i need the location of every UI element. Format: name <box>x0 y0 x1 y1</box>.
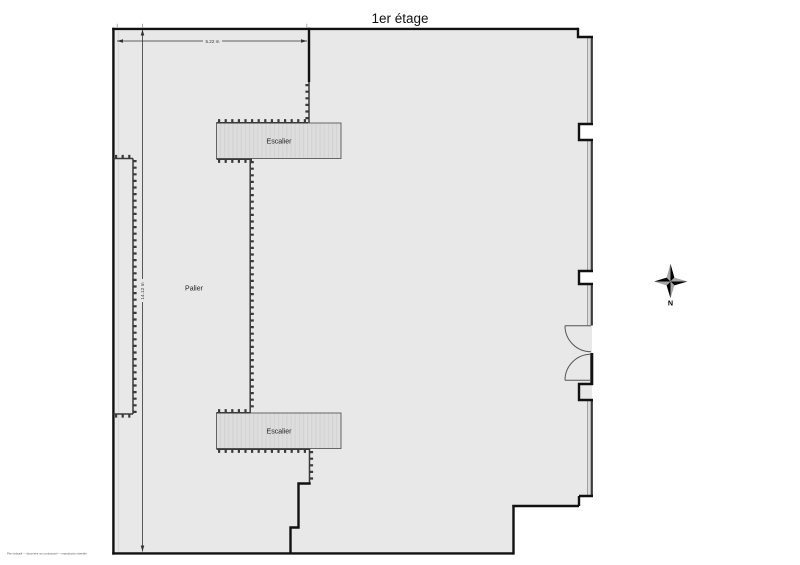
svg-text:Palier: Palier <box>185 286 204 293</box>
svg-text:1er étage: 1er étage <box>371 11 428 26</box>
svg-text:N: N <box>668 299 673 308</box>
svg-text:14.12 m: 14.12 m <box>140 282 146 299</box>
svg-text:5.22 m: 5.22 m <box>205 39 219 44</box>
svg-text:Plan indicatif — document non: Plan indicatif — document non contractue… <box>7 552 87 556</box>
svg-text:Escalier: Escalier <box>267 429 293 436</box>
svg-text:Escalier: Escalier <box>267 139 293 146</box>
